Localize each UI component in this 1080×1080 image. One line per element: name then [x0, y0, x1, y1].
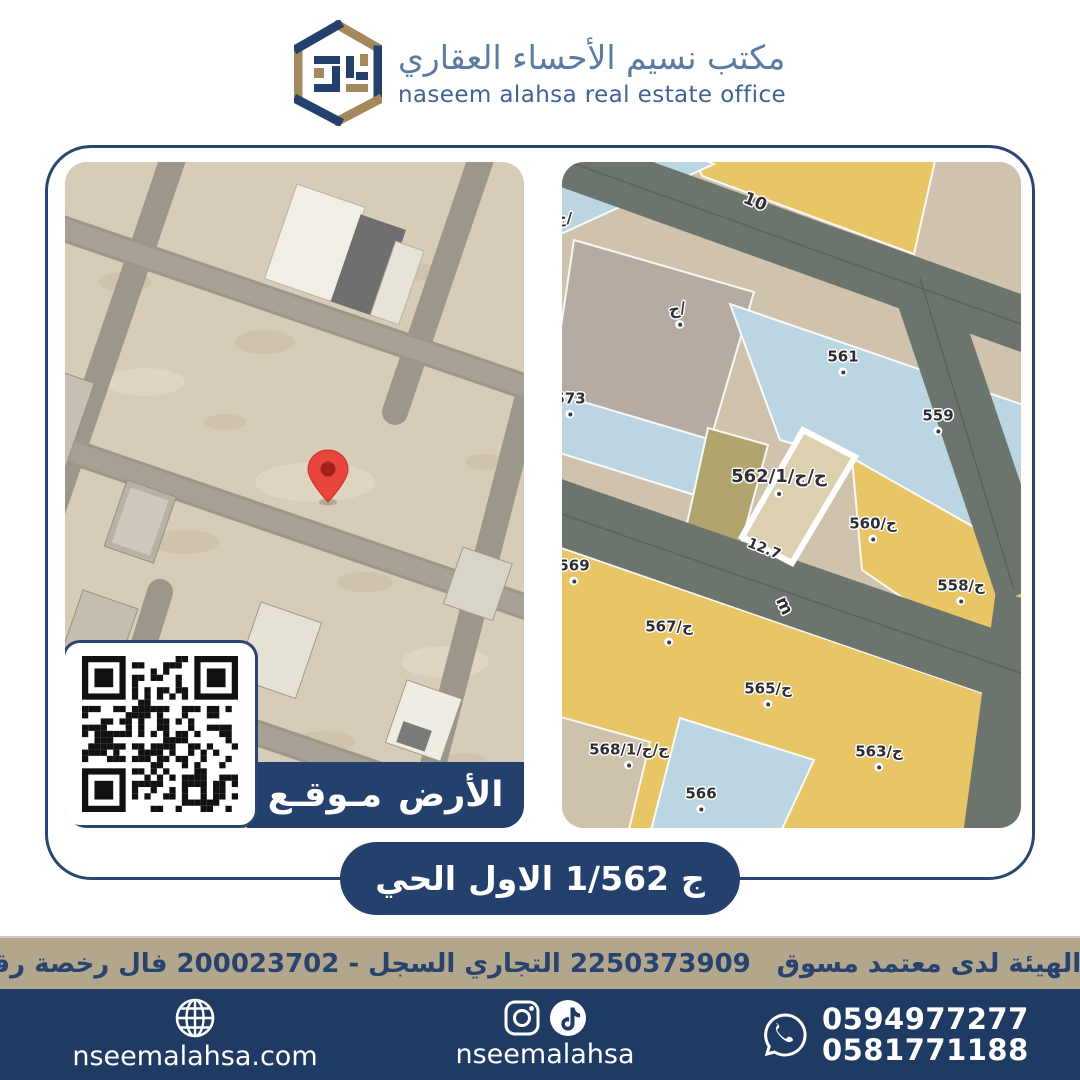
phone-number-1[interactable]: 0594977277 [822, 1004, 1029, 1035]
website-group: nseemalahsa.com [60, 989, 330, 1080]
parcel-label: ج/ [562, 209, 572, 227]
parcel-label: 559 [922, 407, 953, 436]
parcel-label: ج/563 [855, 743, 903, 772]
parcel-label: ج/ج/562/1 [731, 466, 827, 498]
parcel-label: ج/567 [645, 618, 693, 647]
parcel-label: ج/558 [937, 577, 985, 606]
social-icons [503, 999, 587, 1037]
whatsapp-icon[interactable] [760, 1010, 810, 1060]
parcel-label: 566 [685, 785, 716, 814]
instagram-icon[interactable] [503, 999, 541, 1037]
district-banner: الحيالاول1/562ج [340, 842, 740, 915]
tiktok-icon[interactable] [549, 999, 587, 1037]
website-url[interactable]: nseemalahsa.com [72, 1041, 317, 1072]
phone-number-2[interactable]: 0581771188 [822, 1035, 1029, 1066]
flyer: مكتب نسيم الأحساء العقاري naseem alahsa … [0, 0, 1080, 1080]
parcel-map: 10ج/ج/561573559ج/ج/562/1ج/56012.7569mج/5… [562, 162, 1021, 828]
parcel-label: 569 [562, 557, 590, 586]
license-text-repeat: مسوقمعتمدلدىالهيئةالعامةللعقار-رقمرخصةفا… [777, 949, 1080, 979]
header: مكتب نسيم الأحساء العقاري naseem alahsa … [0, 8, 1080, 138]
parcel-label: 561 [827, 348, 858, 377]
logo-mark [294, 20, 382, 126]
phone-group: 0594977277 0581771188 [760, 989, 1060, 1080]
satellite-map: مـوقـعالأرض [65, 162, 524, 828]
qr-code-graphic [82, 656, 238, 812]
parcel-label: ج/560 [849, 515, 897, 544]
license-ticker: مسوقمعتمدلدىالهيئةالعامةللعقار-رقمرخصةفا… [0, 938, 1080, 989]
logo: مكتب نسيم الأحساء العقاري naseem alahsa … [294, 20, 786, 126]
qr-code [65, 640, 258, 828]
social-handle[interactable]: nseemalahsa [455, 1039, 634, 1070]
social-group: nseemalahsa [420, 989, 670, 1080]
parcel-label: 573 [562, 390, 586, 419]
company-name-arabic: مكتب نسيم الأحساء العقاري [398, 36, 785, 80]
phone-numbers: 0594977277 0581771188 [822, 1004, 1029, 1066]
logo-text: مكتب نسيم الأحساء العقاري naseem alahsa … [398, 36, 786, 110]
company-name-english: naseem alahsa real estate office [398, 80, 786, 110]
land-location-badge: مـوقـعالأرض [247, 762, 524, 828]
parcel-label: ج/565 [744, 680, 792, 709]
footer: nseemalahsa.com nseemalahsa [0, 989, 1080, 1080]
license-bar: مسوقمعتمدلدىالهيئةالعامةللعقار-رقمرخصةفا… [0, 938, 1080, 989]
maps-card: مـوقـعالأرض [45, 145, 1035, 880]
parcel-label: ج/ج/568/1 [589, 741, 669, 770]
globe-icon [174, 997, 216, 1039]
license-text: مسوقمعتمدلدىالهيئةالعامةللعقار-رقمرخصةفا… [0, 949, 751, 979]
